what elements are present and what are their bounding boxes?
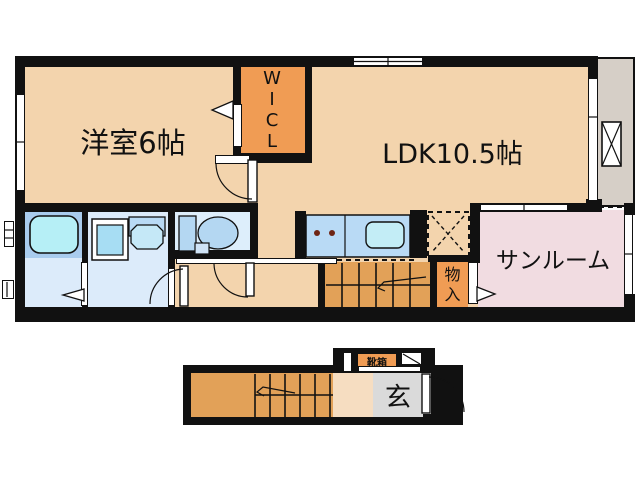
doorway-wicl	[233, 104, 242, 147]
label-storage: 物 入	[438, 262, 467, 307]
room-genkan: 玄	[373, 373, 423, 417]
room-washroom	[88, 212, 168, 307]
window-bath-lower	[2, 280, 14, 299]
label-ldk: LDK10.5帖	[330, 131, 575, 171]
corridor-edge-band	[176, 258, 337, 264]
wicl-letter: I	[269, 89, 274, 110]
window-ldk-balcony	[588, 78, 598, 201]
entrance-step-mark-box	[401, 352, 422, 365]
window-bath-upper	[4, 221, 14, 247]
floorplan-canvas: 玄 靴箱	[0, 0, 638, 480]
western-room-text: 洋室6帖	[80, 120, 185, 162]
balcony-strip	[596, 57, 635, 207]
window-left-westernroom	[16, 94, 25, 191]
label-wicl: W I C L	[256, 66, 288, 154]
doorway-washroom	[168, 268, 175, 306]
wall-stairs-left	[318, 262, 325, 307]
wall-toilet-right	[250, 212, 258, 259]
storage-letter: 物	[444, 265, 460, 285]
staircase-1f	[191, 373, 333, 417]
label-sunroom: サンルーム	[483, 243, 623, 273]
entrance-threshold	[358, 366, 421, 372]
wall-storage-sunroom	[470, 203, 480, 263]
wall-kitchen-right	[410, 210, 427, 258]
wall-wicl-right	[305, 56, 312, 163]
wall-right-top	[588, 56, 598, 80]
doorway-entrance	[423, 373, 431, 414]
bath-tub-area	[25, 212, 82, 258]
label-western-room: 洋室6帖	[38, 121, 228, 161]
window-top-ldk	[353, 57, 423, 66]
wicl-letter: C	[266, 110, 279, 131]
ldk-text: LDK10.5帖	[382, 132, 523, 171]
wall-wicl-left-a	[233, 64, 241, 105]
wicl-letter: L	[267, 131, 277, 152]
shoebox-side-slot	[343, 352, 352, 372]
wicl-letter: W	[263, 68, 281, 89]
doorway-bathroom	[81, 262, 88, 306]
genkan-label: 玄	[385, 377, 411, 414]
wall-kitchen-left	[295, 211, 306, 258]
sunroom-text: サンルーム	[496, 241, 610, 275]
staircase-2f	[325, 262, 430, 307]
wall-storage-top	[428, 255, 470, 262]
window-sunroom-right	[624, 214, 633, 295]
wall-westernroom-bottom	[15, 203, 258, 212]
storage-letter: 入	[444, 285, 460, 305]
doorway-sunroom	[468, 262, 478, 304]
entrance-hall-floor	[333, 373, 373, 417]
wall-storage-left	[430, 262, 437, 307]
bath-floor	[25, 258, 82, 307]
window-sunroom-top	[480, 204, 568, 211]
wall-sunroom-corner-bottom	[624, 294, 635, 308]
wall-bottom	[15, 307, 635, 322]
